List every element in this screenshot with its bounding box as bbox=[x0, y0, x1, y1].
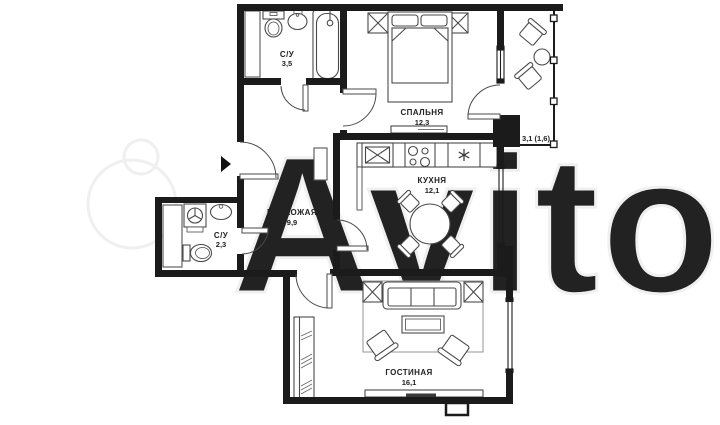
room-area-balcony: 3,1 (1,6) bbox=[522, 134, 550, 143]
room-area-hallway: 9,9 bbox=[287, 218, 297, 227]
balcony-chair-icon bbox=[514, 62, 544, 91]
room-label-hallway: ПРИХОЖАЯ bbox=[267, 208, 317, 217]
bed-icon bbox=[388, 12, 452, 102]
bathtub-icon bbox=[313, 10, 342, 82]
entrance-arrow-icon bbox=[221, 156, 231, 172]
sofa-icon bbox=[383, 282, 461, 309]
room-area-bathroom-top: 3,5 bbox=[282, 59, 292, 68]
toilet-icon bbox=[263, 11, 284, 37]
sink-icon bbox=[288, 10, 307, 30]
nightstand-icon bbox=[368, 13, 388, 33]
washing-machine-icon bbox=[184, 204, 206, 232]
closet-icon bbox=[314, 148, 327, 180]
coffee-table-icon bbox=[402, 316, 444, 333]
side-table-icon bbox=[464, 282, 483, 302]
floor-plan: Avito bbox=[0, 0, 720, 425]
dresser-icon bbox=[391, 126, 447, 133]
room-label-kitchen: КУХНЯ bbox=[418, 176, 447, 185]
toilet-icon bbox=[183, 245, 212, 262]
room-area-kitchen: 12,1 bbox=[425, 186, 440, 195]
wardrobe-icon bbox=[294, 317, 314, 402]
room-label-bedroom: СПАЛЬНЯ bbox=[400, 108, 443, 117]
closet-icon bbox=[163, 205, 182, 267]
watermark-circle-small bbox=[124, 140, 158, 174]
balcony-table-icon bbox=[534, 49, 550, 65]
room-area-bedroom: 12,3 bbox=[415, 118, 430, 127]
wall-notch bbox=[446, 403, 468, 415]
sink-icon bbox=[211, 205, 232, 220]
window-sill bbox=[365, 390, 483, 398]
room-area-bathroom-small: 2,3 bbox=[216, 240, 226, 249]
kitchen-sink-icon bbox=[362, 143, 393, 167]
room-label-bathroom-small: С/У bbox=[214, 231, 229, 240]
room-label-living-room: ГОСТИНАЯ bbox=[385, 368, 432, 377]
duct-icon bbox=[245, 11, 260, 77]
room-area-living-room: 16,1 bbox=[402, 378, 417, 387]
balcony-chair-icon bbox=[517, 18, 547, 47]
dining-table-icon bbox=[410, 204, 450, 244]
room-label-bathroom-top: С/У bbox=[280, 50, 295, 59]
floor-plan-page: Avito bbox=[0, 0, 720, 425]
side-table-icon bbox=[363, 282, 382, 302]
